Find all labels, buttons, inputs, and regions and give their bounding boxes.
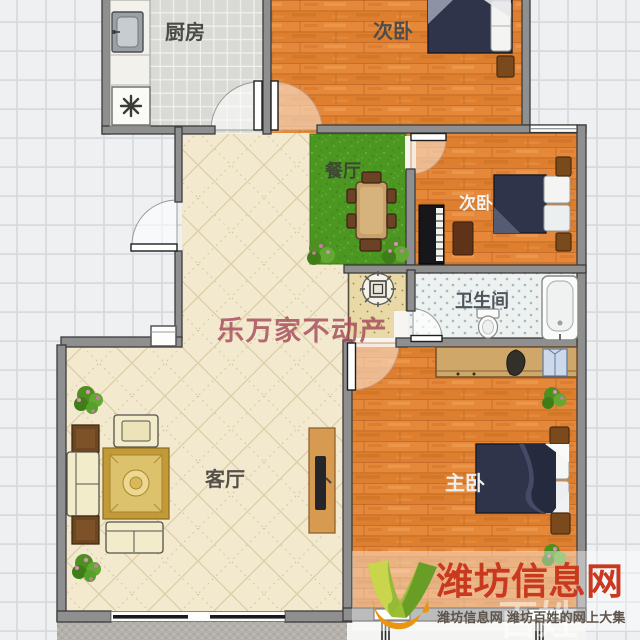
svg-text:次卧: 次卧 [459,193,493,213]
svg-text:潍坊信息网 潍坊百姓的网上大集: 潍坊信息网 潍坊百姓的网上大集 [437,610,626,625]
svg-text:卫生间: 卫生间 [455,290,509,311]
svg-text:主卧: 主卧 [445,471,485,495]
svg-text:客厅: 客厅 [204,467,245,491]
svg-text:餐厅: 餐厅 [324,160,361,181]
svg-text:厨房: 厨房 [165,20,205,44]
svg-text:潍坊信息网: 潍坊信息网 [436,561,624,602]
svg-text:乐万家不动产: 乐万家不动产 [217,315,388,346]
svg-text:次卧: 次卧 [373,19,413,43]
